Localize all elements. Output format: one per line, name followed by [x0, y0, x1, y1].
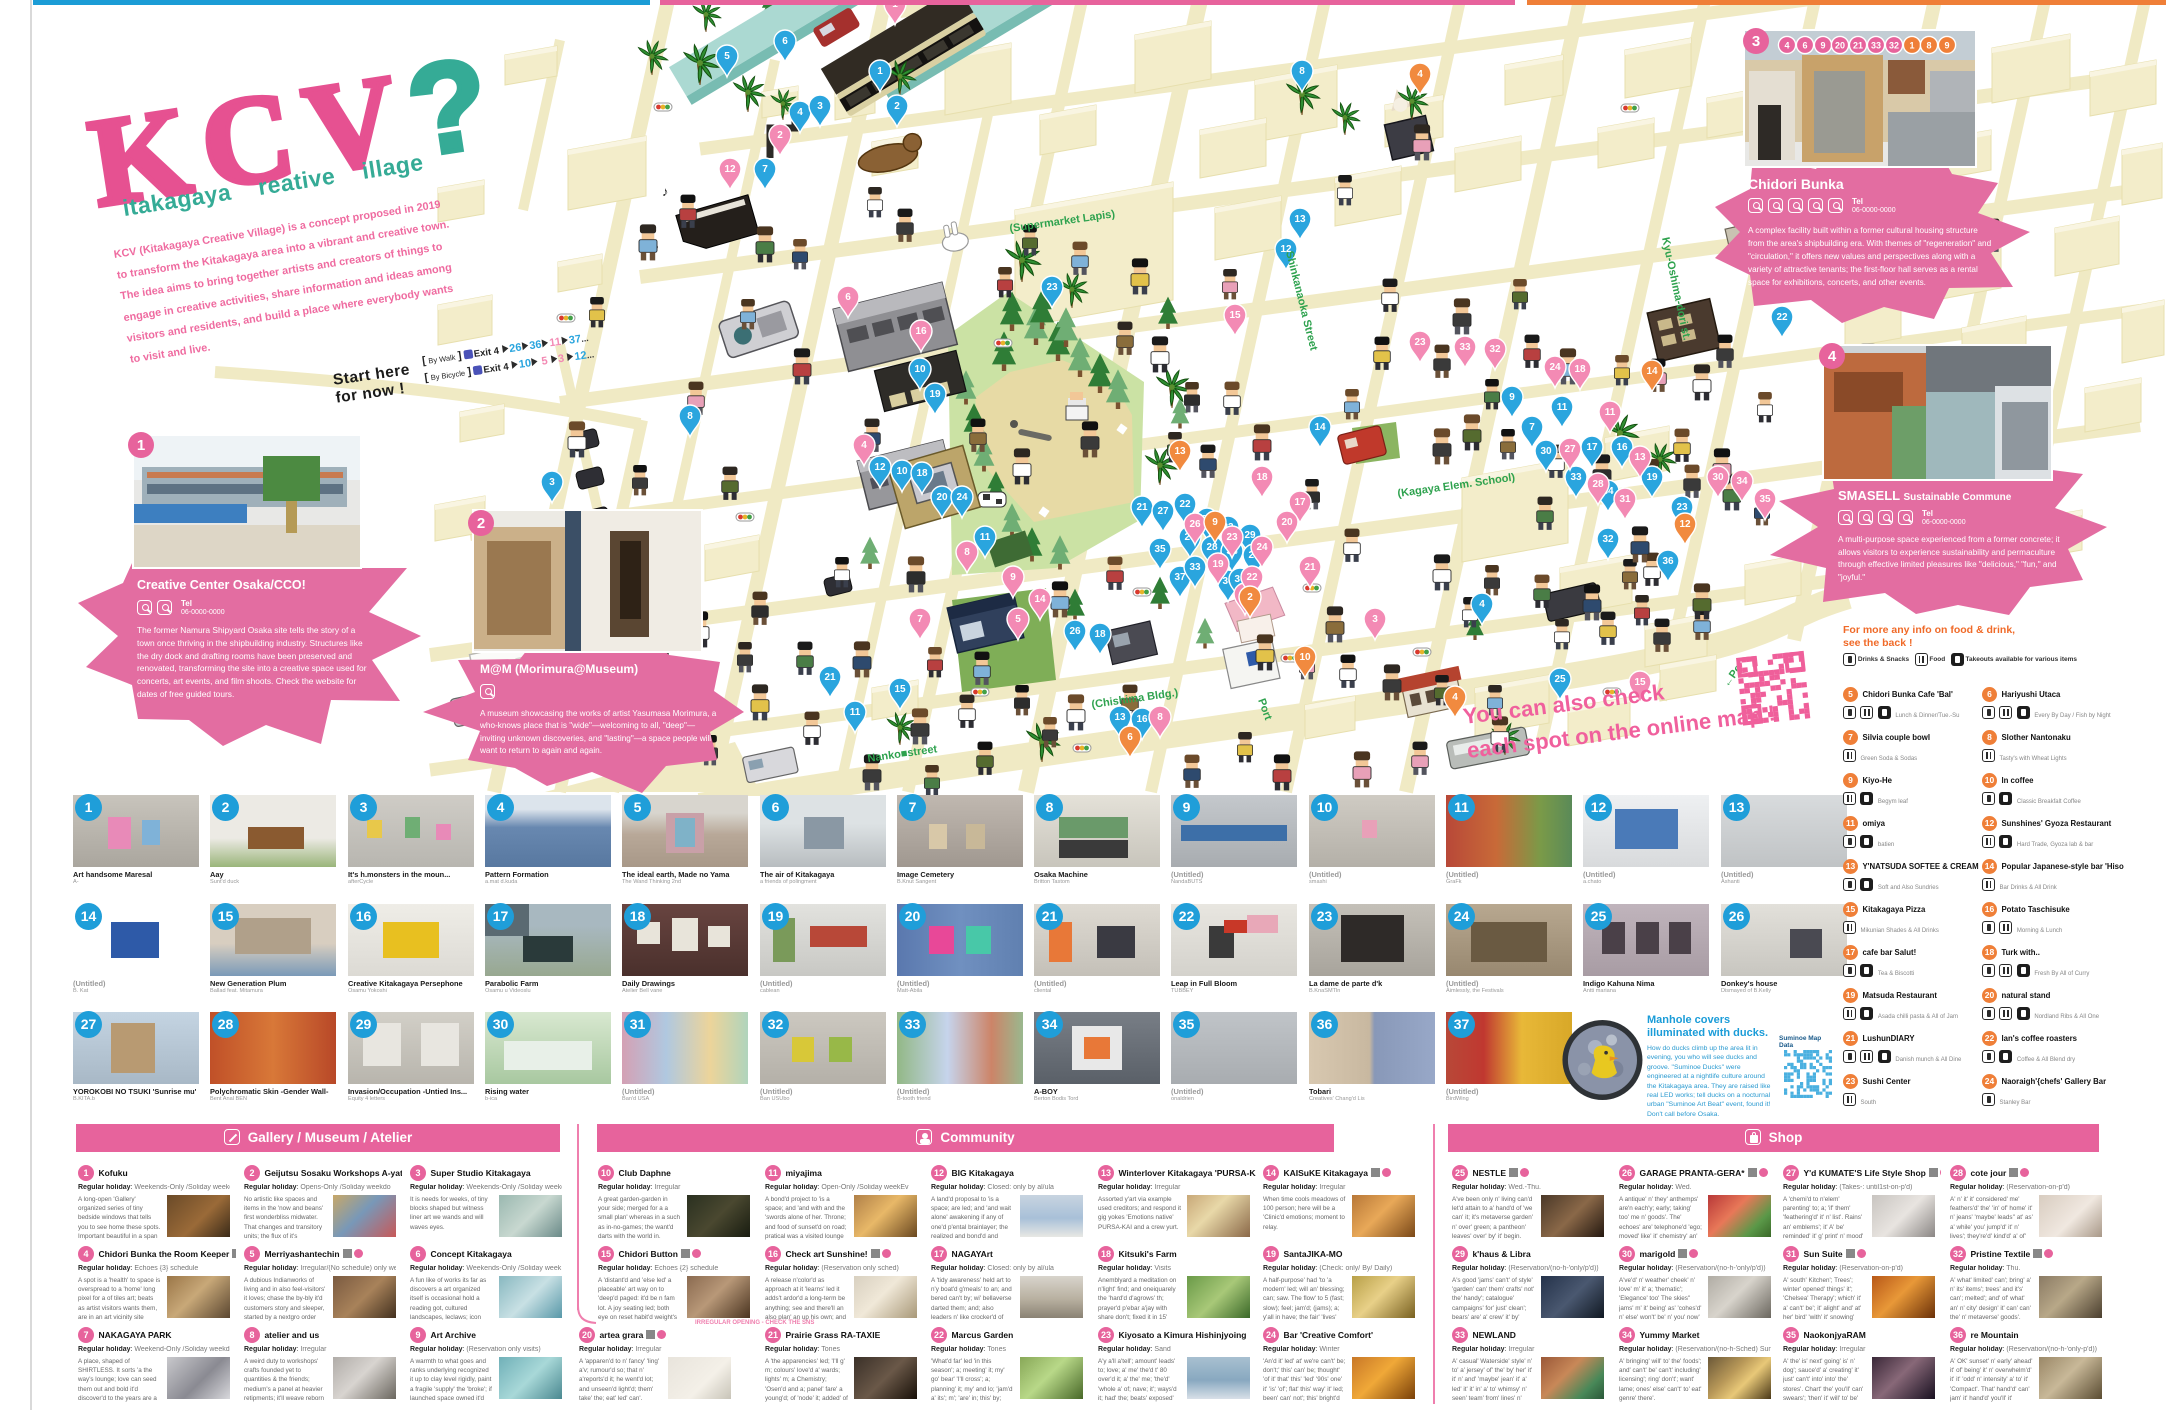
svg-text:21: 21: [1853, 41, 1863, 51]
svg-text:8: 8: [1926, 41, 1931, 51]
svg-text:20: 20: [1835, 41, 1845, 51]
svg-text:4: 4: [1828, 348, 1837, 365]
svg-text:32: 32: [1889, 41, 1899, 51]
svg-text:33: 33: [1871, 41, 1881, 51]
svg-text:1: 1: [1909, 41, 1914, 51]
svg-text:9: 9: [1820, 41, 1825, 51]
svg-text:3: 3: [1752, 33, 1760, 50]
svg-text:6: 6: [1802, 41, 1807, 51]
svg-text:2: 2: [477, 515, 485, 532]
svg-text:1: 1: [137, 437, 145, 454]
svg-text:4: 4: [1784, 41, 1789, 51]
svg-text:9: 9: [1944, 41, 1949, 51]
